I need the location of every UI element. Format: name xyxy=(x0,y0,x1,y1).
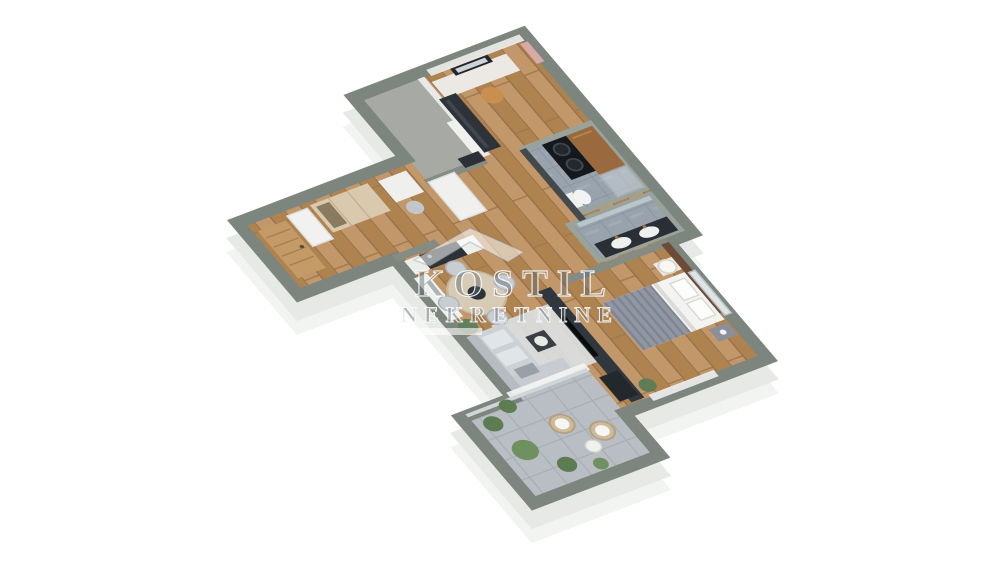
watermark-subtitle: NEKRETNINE xyxy=(401,302,619,327)
floorplan-page: KOSTIL NEKRETNINE xyxy=(0,0,1000,562)
watermark-brand: KOSTIL xyxy=(415,263,615,305)
watermark-underline xyxy=(404,328,482,335)
floorplan-3d-render: KOSTIL NEKRETNINE xyxy=(0,0,1000,562)
